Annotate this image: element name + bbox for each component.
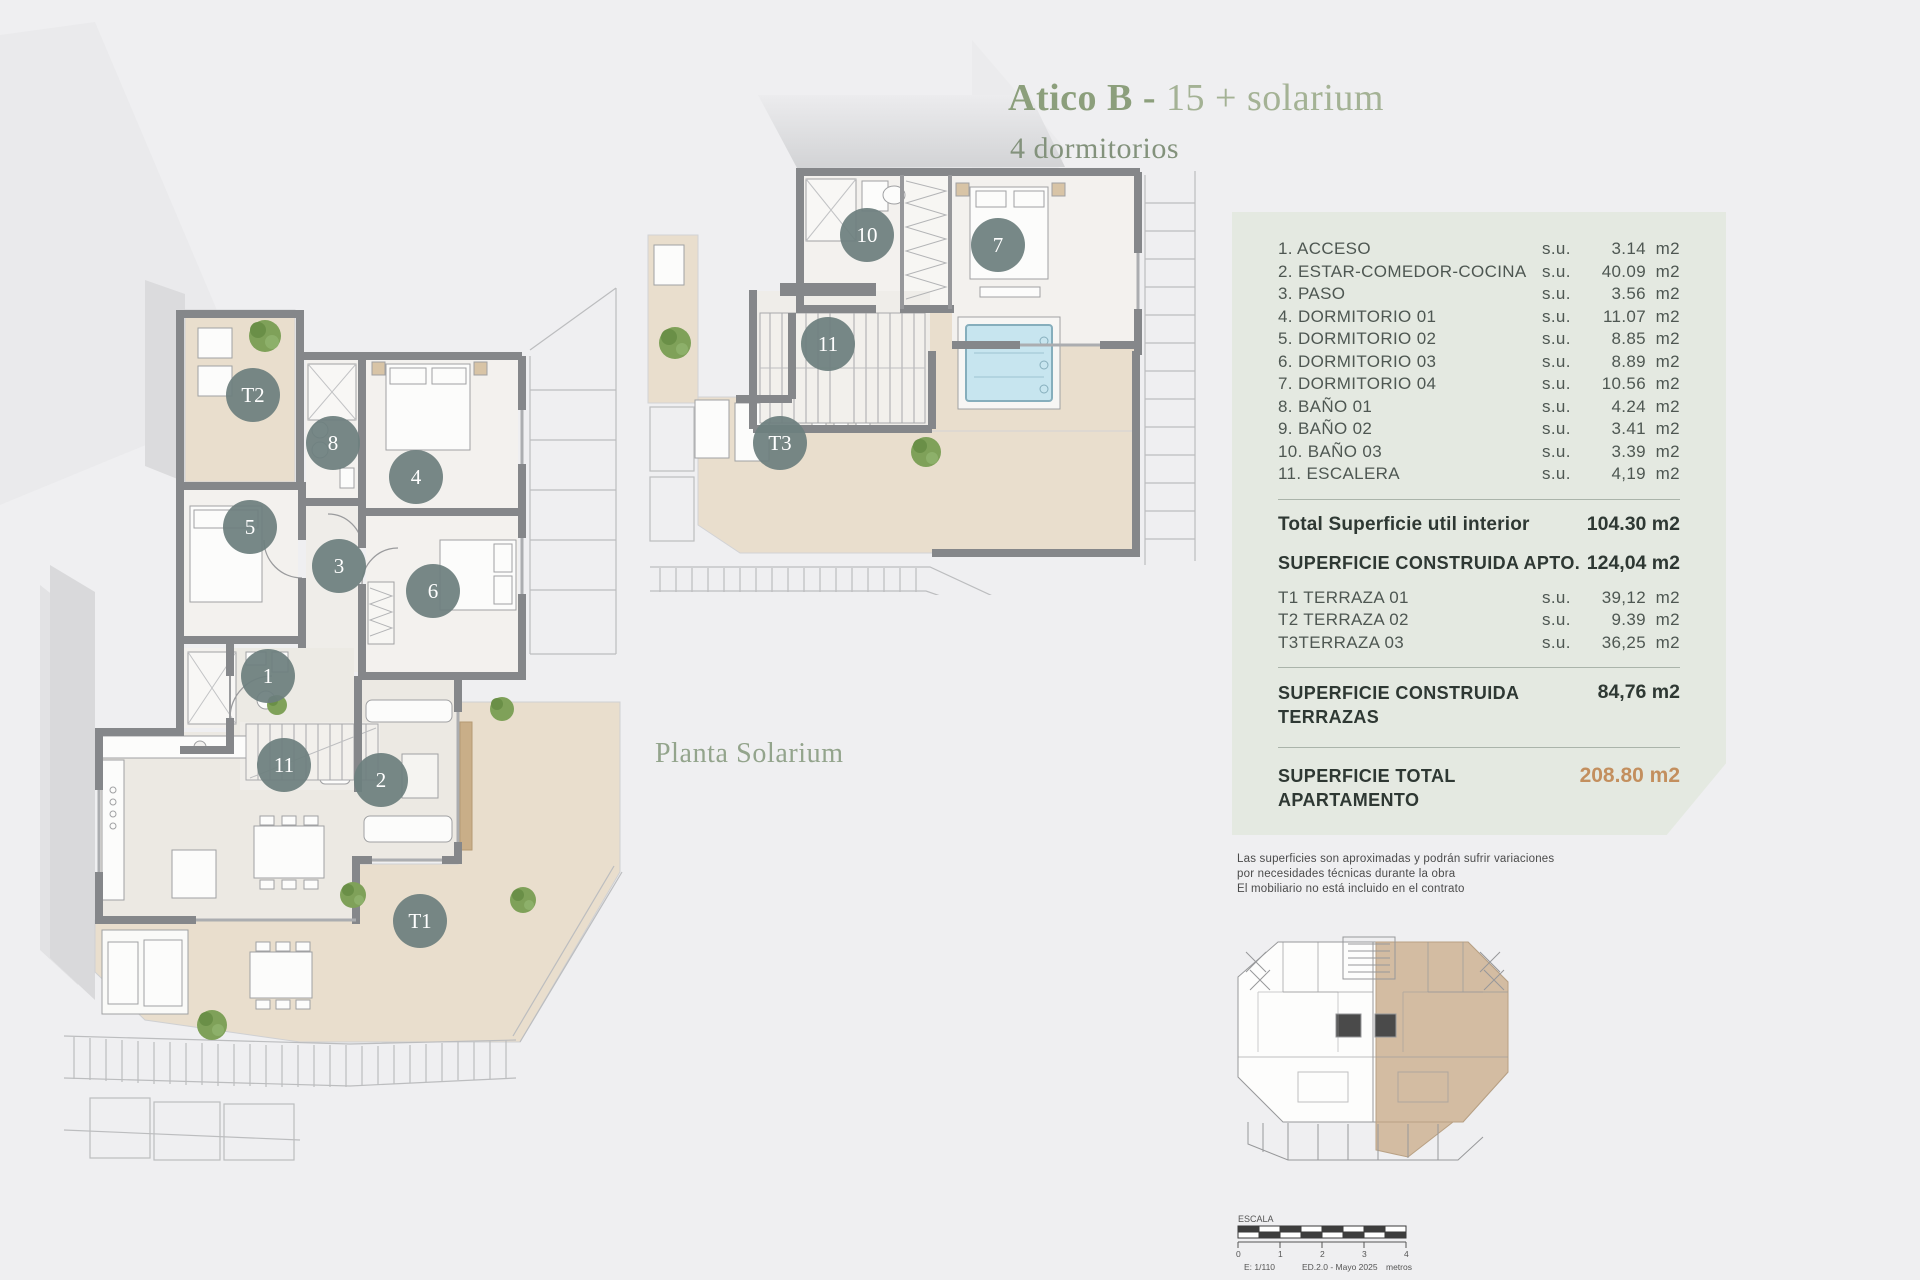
title-light: 15 + solarium xyxy=(1166,77,1384,119)
room-area: 3.14 xyxy=(1582,238,1646,261)
unit: m2 xyxy=(1646,632,1680,655)
marker-label: 8 xyxy=(328,431,339,455)
marker-label: 7 xyxy=(993,233,1004,257)
unit: m2 xyxy=(1646,587,1680,610)
room-row: 5. DORMITORIO 02s.u.8.85m2 xyxy=(1278,328,1680,351)
tick-label: 2 xyxy=(1320,1249,1325,1259)
label-line: SUPERFICIE CONSTRUIDA xyxy=(1278,681,1598,705)
unit: m2 xyxy=(1646,238,1680,261)
room-label: 4. DORMITORIO 01 xyxy=(1278,306,1542,329)
scalebar-scale: E: 1/110 xyxy=(1244,1262,1275,1272)
surface-panel: 1. ACCESOs.u.3.14m2 2. ESTAR-COMEDOR-COC… xyxy=(1232,212,1726,835)
tick-label: 3 xyxy=(1362,1249,1367,1259)
room-area: 3.41 xyxy=(1582,418,1646,441)
su: s.u. xyxy=(1542,632,1582,655)
terrace-row: T1 TERRAZA 01s.u.39,12m2 xyxy=(1278,587,1680,610)
room-marker: 8 xyxy=(306,416,360,470)
su: s.u. xyxy=(1542,587,1582,610)
su: s.u. xyxy=(1542,396,1582,419)
unit: m2 xyxy=(1646,283,1680,306)
marker-label: T1 xyxy=(408,909,431,933)
total-interior-value: 104.30 m2 xyxy=(1587,513,1680,536)
room-marker: 10 xyxy=(840,208,894,262)
room-label: 8. BAÑO 01 xyxy=(1278,396,1542,419)
room-label: 3. PASO xyxy=(1278,283,1542,306)
su: s.u. xyxy=(1542,238,1582,261)
scale-bar: ESCALA 0 1 2 3 4 E: 1/110 ED.2.0 - Mayo … xyxy=(1234,1212,1444,1274)
room-marker: 1 xyxy=(241,649,295,703)
terrace-area: 36,25 xyxy=(1582,632,1646,655)
terrace-row: T3TERRAZA 03s.u.36,25m2 xyxy=(1278,632,1680,655)
room-area: 10.56 xyxy=(1582,373,1646,396)
unit: m2 xyxy=(1646,396,1680,419)
total-interior-label: Total Superficie util interior xyxy=(1278,514,1587,536)
room-area: 3.56 xyxy=(1582,283,1646,306)
unit: m2 xyxy=(1646,418,1680,441)
terrace-area: 9.39 xyxy=(1582,609,1646,632)
unit: m2 xyxy=(1646,306,1680,329)
unit: m2 xyxy=(1646,463,1680,486)
room-marker: 11 xyxy=(801,317,855,371)
room-marker: 5 xyxy=(223,500,277,554)
room-row: 11. ESCALERAs.u.4,19m2 xyxy=(1278,463,1680,486)
marker-label: 11 xyxy=(274,753,294,777)
marker-label: 11 xyxy=(818,332,838,356)
unit: m2 xyxy=(1646,328,1680,351)
room-marker: T3 xyxy=(753,416,807,470)
construida-terrazas-row: SUPERFICIE CONSTRUIDA TERRAZAS 84,76 m2 xyxy=(1278,681,1680,729)
scalebar-title: ESCALA xyxy=(1238,1214,1274,1224)
su: s.u. xyxy=(1542,306,1582,329)
marker-label: 4 xyxy=(411,465,422,489)
page-subtitle: 4 dormitorios xyxy=(1010,132,1179,166)
marker-label: 3 xyxy=(334,554,345,578)
room-row: 7. DORMITORIO 04s.u.10.56m2 xyxy=(1278,373,1680,396)
room-label: 1. ACCESO xyxy=(1278,238,1542,261)
main-floor-plan: T2 8 4 5 3 6 1 11 2 T1 xyxy=(50,230,630,1190)
terrace-label: T3TERRAZA 03 xyxy=(1278,632,1542,655)
construida-apto-row: SUPERFICIE CONSTRUIDA APTO. 124,04 m2 xyxy=(1278,552,1680,575)
tick-label: 1 xyxy=(1278,1249,1283,1259)
unit: m2 xyxy=(1646,261,1680,284)
total-interior-row: Total Superficie util interior 104.30 m2 xyxy=(1278,513,1680,536)
room-label: 7. DORMITORIO 04 xyxy=(1278,373,1542,396)
terrace-label: T1 TERRAZA 01 xyxy=(1278,587,1542,610)
marker-label: 10 xyxy=(857,223,878,247)
total-apartamento-value: 208.80 m2 xyxy=(1580,764,1680,812)
room-row: 10. BAÑO 03s.u.3.39m2 xyxy=(1278,441,1680,464)
tick-label: 0 xyxy=(1236,1249,1241,1259)
room-marker: 6 xyxy=(406,564,460,618)
solarium-floor-plan: 10 7 11 T3 xyxy=(640,95,1200,595)
su: s.u. xyxy=(1542,441,1582,464)
room-row: 4. DORMITORIO 01s.u.11.07m2 xyxy=(1278,306,1680,329)
marker-label: 6 xyxy=(428,579,439,603)
disclaimer-line: El mobiliario no está incluido en el con… xyxy=(1237,882,1554,897)
scalebar-edition: ED.2.0 - Mayo 2025 xyxy=(1302,1262,1378,1272)
room-marker: 7 xyxy=(971,218,1025,272)
plan-shadow-2 xyxy=(50,565,95,1000)
room-marker: T1 xyxy=(393,894,447,948)
unit: m2 xyxy=(1646,373,1680,396)
divider xyxy=(1278,499,1680,500)
room-label: 2. ESTAR-COMEDOR-COCINA xyxy=(1278,261,1542,284)
room-label: 9. BAÑO 02 xyxy=(1278,418,1542,441)
marker-label: 5 xyxy=(245,515,256,539)
room-label: 11. ESCALERA xyxy=(1278,463,1542,486)
solarium-caption: Planta Solarium xyxy=(655,738,844,770)
room-marker: 2 xyxy=(354,753,408,807)
marker-label: T3 xyxy=(768,431,791,455)
su: s.u. xyxy=(1542,418,1582,441)
room-label: 6. DORMITORIO 03 xyxy=(1278,351,1542,374)
page-title: Atico B - 15 + solarium xyxy=(1008,76,1384,120)
room-row: 6. DORMITORIO 03s.u.8.89m2 xyxy=(1278,351,1680,374)
su: s.u. xyxy=(1542,351,1582,374)
disclaimer-line: Las superficies son aproximadas y podrán… xyxy=(1237,852,1554,867)
construida-terrazas-label: SUPERFICIE CONSTRUIDA TERRAZAS xyxy=(1278,681,1598,729)
terrace-label: T2 TERRAZA 02 xyxy=(1278,609,1542,632)
room-row: 9. BAÑO 02s.u.3.41m2 xyxy=(1278,418,1680,441)
room-area: 8.89 xyxy=(1582,351,1646,374)
disclaimer: Las superficies son aproximadas y podrán… xyxy=(1237,852,1554,897)
room-area: 4,19 xyxy=(1582,463,1646,486)
room-area: 3.39 xyxy=(1582,441,1646,464)
room-area: 4.24 xyxy=(1582,396,1646,419)
room-marker: 11 xyxy=(257,738,311,792)
room-label: 10. BAÑO 03 xyxy=(1278,441,1542,464)
room-row: 8. BAÑO 01s.u.4.24m2 xyxy=(1278,396,1680,419)
room-marker: 3 xyxy=(312,539,366,593)
unit: m2 xyxy=(1646,441,1680,464)
room-area: 8.85 xyxy=(1582,328,1646,351)
key-plan xyxy=(1228,932,1518,1172)
room-row: 2. ESTAR-COMEDOR-COCINAs.u.40.09m2 xyxy=(1278,261,1680,284)
su: s.u. xyxy=(1542,328,1582,351)
title-bold: Atico B - xyxy=(1008,77,1156,119)
su: s.u. xyxy=(1542,283,1582,306)
page: { "colors":{ "page_bg":"#efeff1", "panel… xyxy=(0,0,1920,1280)
unit: m2 xyxy=(1646,351,1680,374)
room-marker: T2 xyxy=(226,368,280,422)
divider xyxy=(1278,747,1680,748)
room-row: 3. PASOs.u.3.56m2 xyxy=(1278,283,1680,306)
total-apartamento-label: SUPERFICIE TOTAL APARTAMENTO xyxy=(1278,764,1580,812)
scalebar-band xyxy=(1238,1226,1406,1238)
construida-apto-value: 124,04 m2 xyxy=(1587,552,1680,575)
label-line: SUPERFICIE TOTAL xyxy=(1278,764,1580,788)
room-area: 40.09 xyxy=(1582,261,1646,284)
terrace-row: T2 TERRAZA 02s.u.9.39m2 xyxy=(1278,609,1680,632)
room-row: 1. ACCESOs.u.3.14m2 xyxy=(1278,238,1680,261)
room-label: 5. DORMITORIO 02 xyxy=(1278,328,1542,351)
scalebar-units: metros xyxy=(1386,1262,1412,1272)
su: s.u. xyxy=(1542,609,1582,632)
marker-label: 2 xyxy=(376,768,387,792)
unit: m2 xyxy=(1646,609,1680,632)
terrace-area: 39,12 xyxy=(1582,587,1646,610)
su: s.u. xyxy=(1542,463,1582,486)
su: s.u. xyxy=(1542,261,1582,284)
tick-label: 4 xyxy=(1404,1249,1409,1259)
scalebar-ticks xyxy=(1238,1242,1406,1248)
total-apartamento-row: SUPERFICIE TOTAL APARTAMENTO 208.80 m2 xyxy=(1278,764,1680,812)
su: s.u. xyxy=(1542,373,1582,396)
marker-label: 1 xyxy=(263,664,274,688)
room-area: 11.07 xyxy=(1582,306,1646,329)
label-line: TERRAZAS xyxy=(1278,705,1598,729)
label-line: APARTAMENTO xyxy=(1278,788,1580,812)
room-marker: 4 xyxy=(389,450,443,504)
divider xyxy=(1278,667,1680,668)
construida-apto-label: SUPERFICIE CONSTRUIDA APTO. xyxy=(1278,553,1587,574)
construida-terrazas-value: 84,76 m2 xyxy=(1598,681,1680,729)
marker-label: T2 xyxy=(241,383,264,407)
disclaimer-line: por necesidades técnicas durante la obra xyxy=(1237,867,1554,882)
